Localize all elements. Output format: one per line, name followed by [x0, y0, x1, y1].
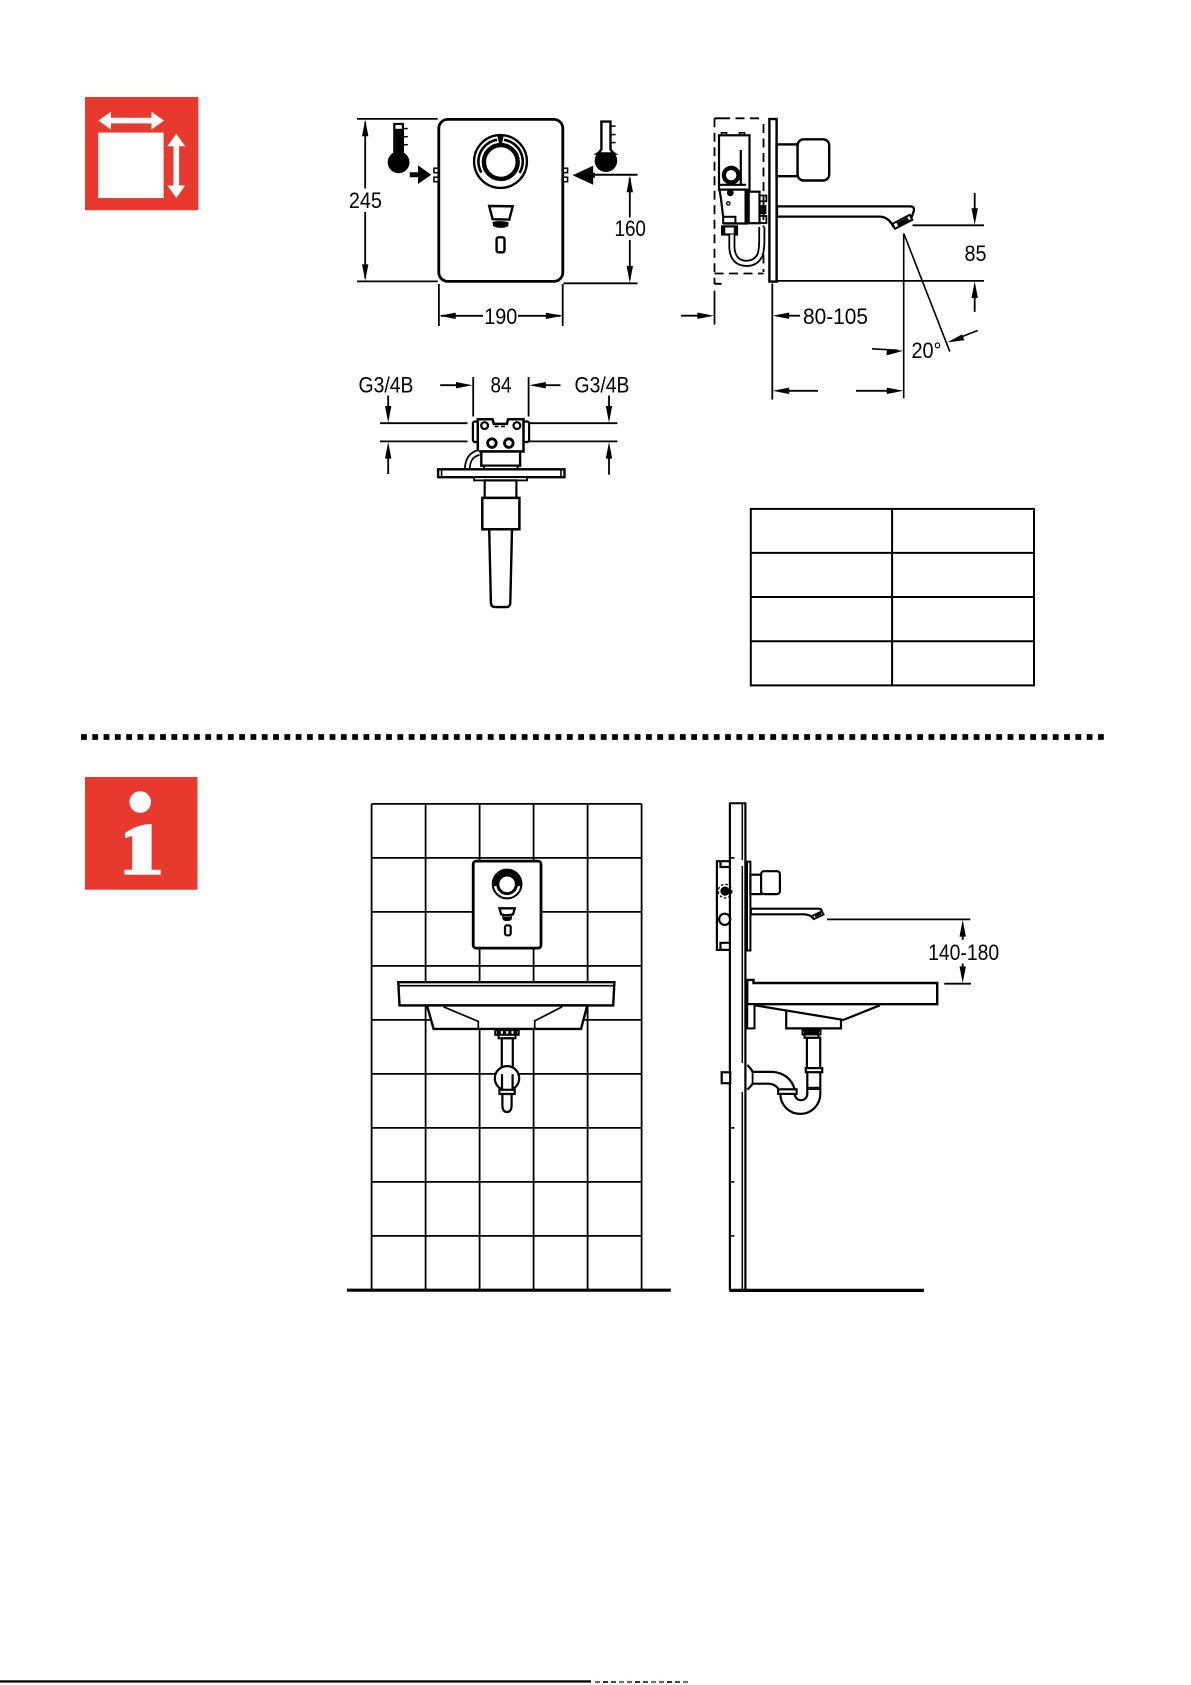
svg-text:160: 160	[614, 216, 646, 241]
svg-text:84: 84	[491, 373, 512, 398]
svg-text:80-105: 80-105	[803, 304, 868, 329]
svg-text:245: 245	[349, 188, 382, 213]
svg-text:G3/4B: G3/4B	[575, 373, 630, 398]
svg-text:190: 190	[484, 304, 517, 329]
svg-text:G3/4B: G3/4B	[359, 373, 414, 398]
svg-text:20°: 20°	[912, 338, 942, 363]
svg-text:85: 85	[965, 241, 987, 266]
svg-text:140-180: 140-180	[928, 940, 999, 965]
